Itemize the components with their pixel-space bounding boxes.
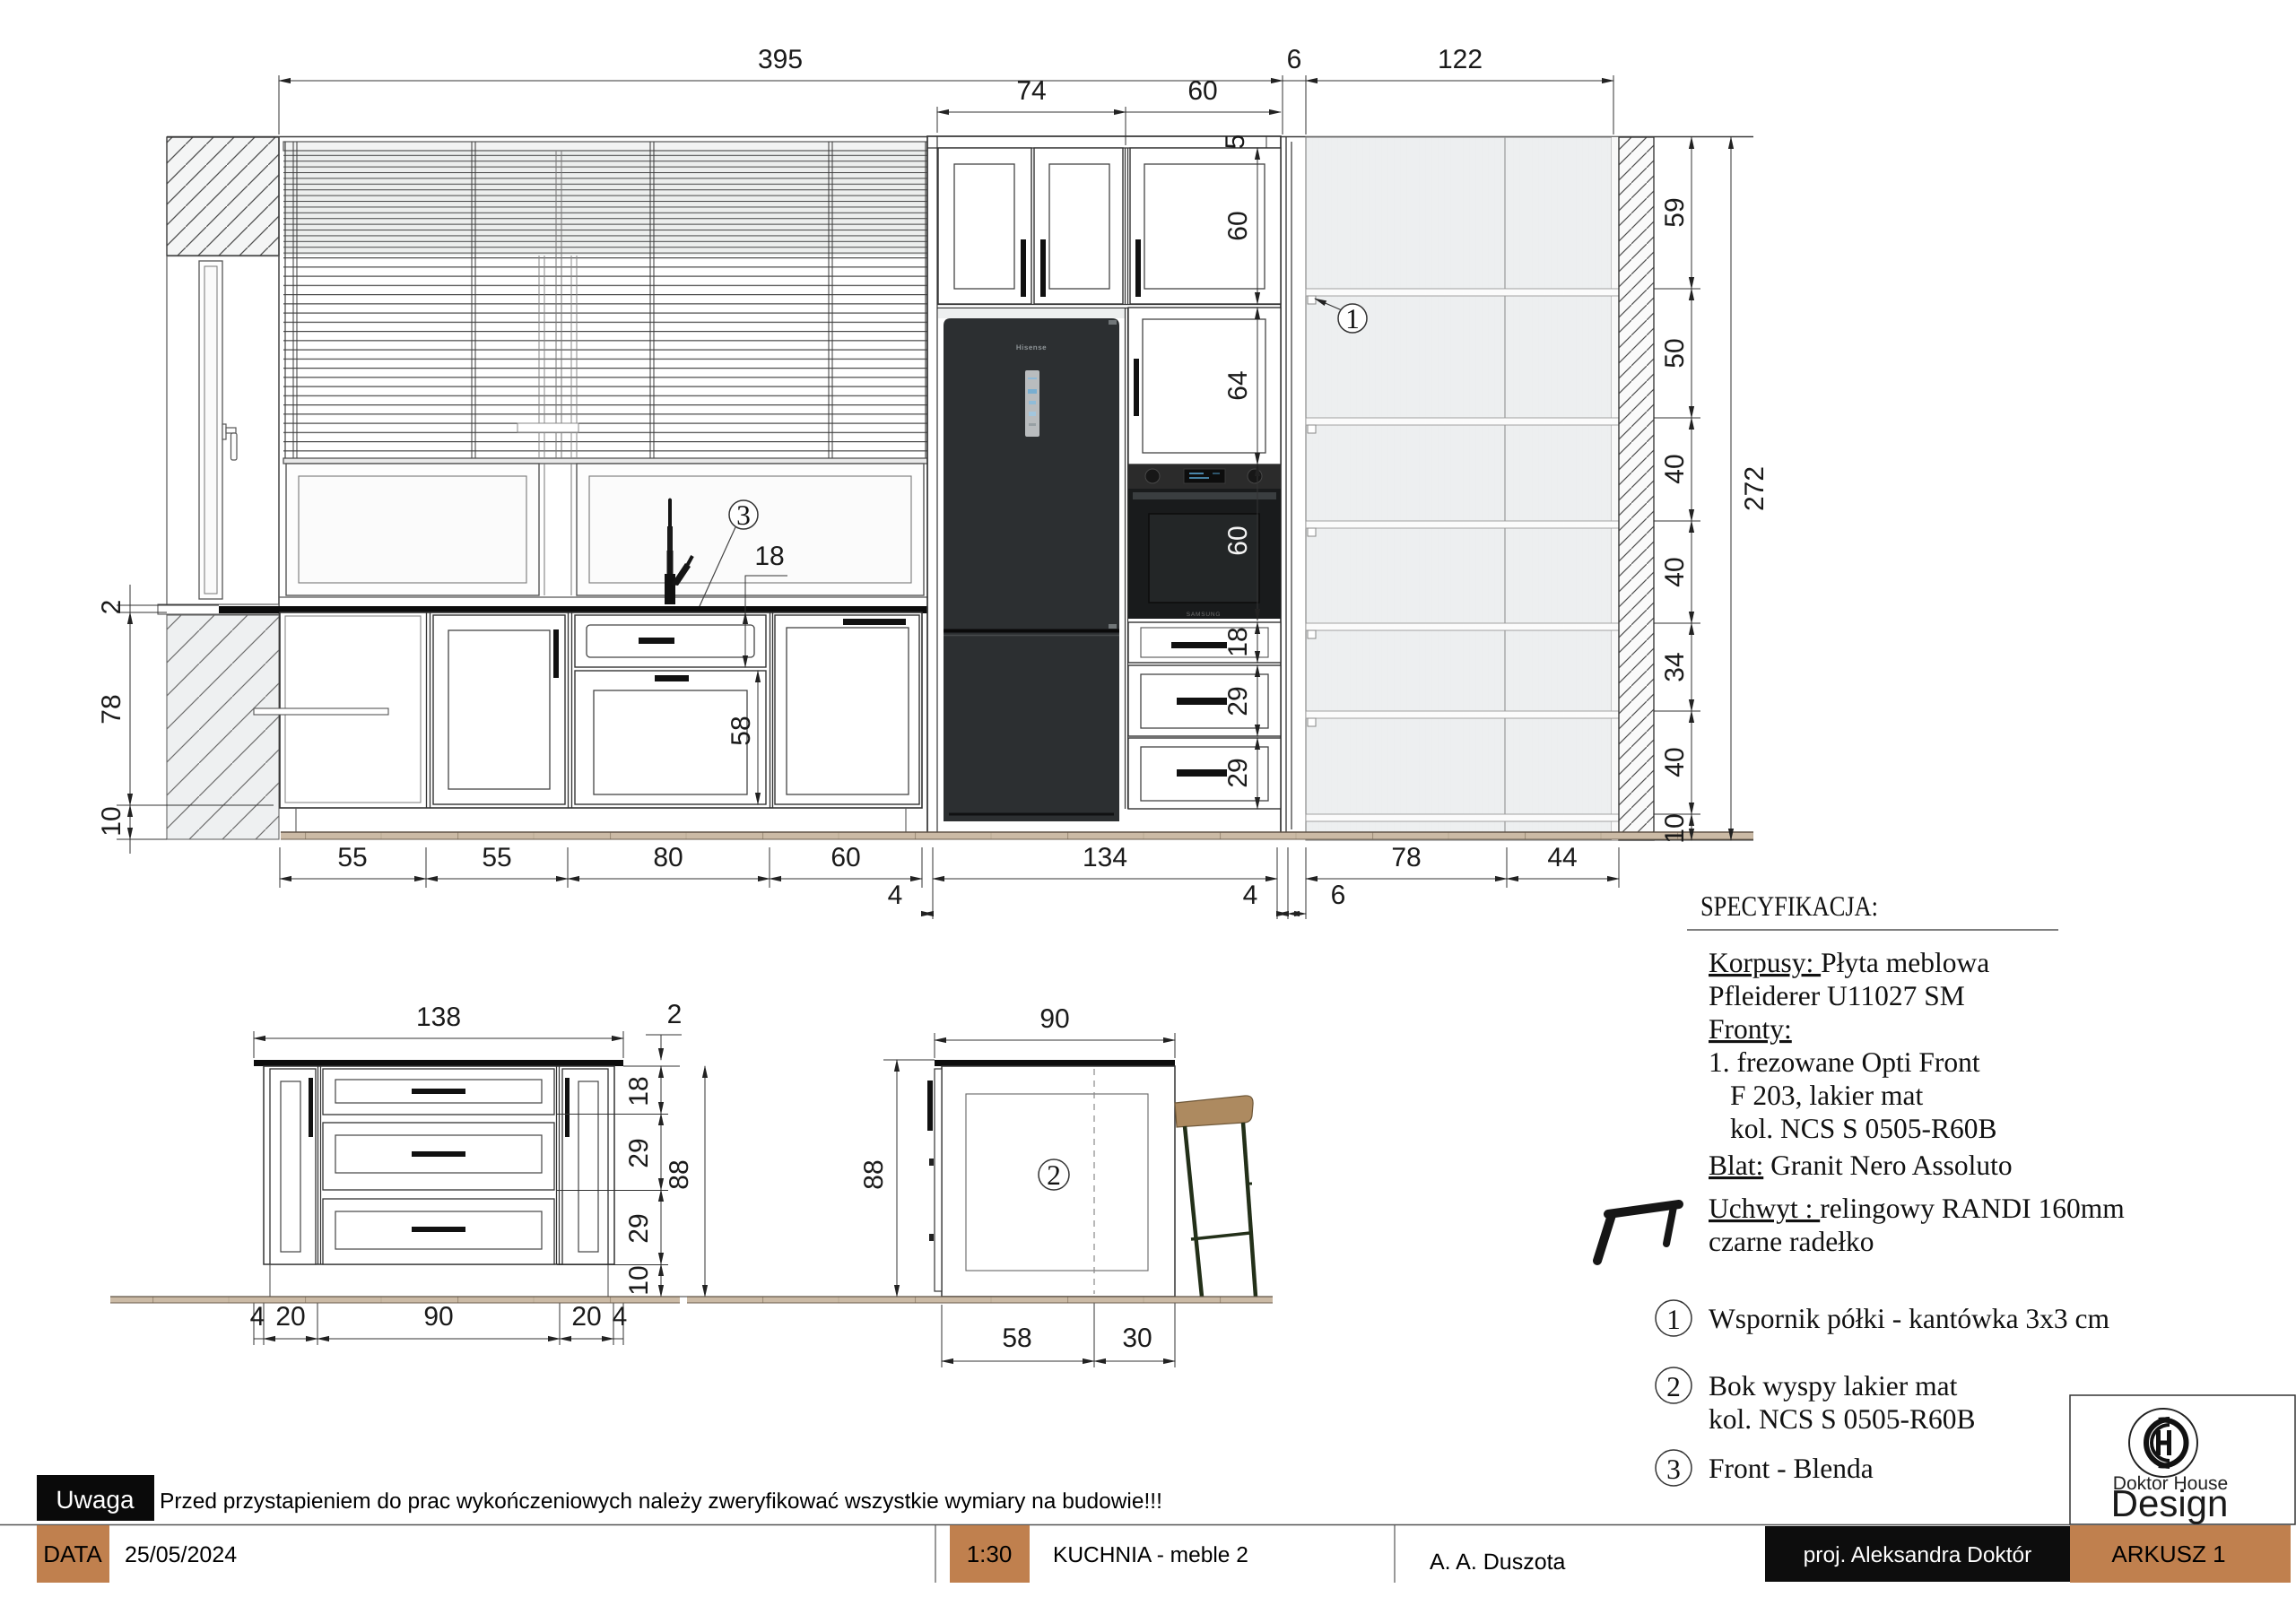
svg-text:2: 2 [97,600,126,615]
svg-text:60: 60 [1187,76,1217,106]
svg-text:10: 10 [1660,813,1690,843]
svg-text:60: 60 [831,843,860,872]
svg-text:40: 40 [1660,747,1690,777]
svg-text:272: 272 [1740,466,1770,511]
svg-text:58: 58 [726,716,756,745]
svg-text:58: 58 [1002,1324,1031,1353]
svg-text:40: 40 [1660,557,1690,586]
svg-text:2: 2 [1666,1371,1681,1402]
svg-text:czarne radełko: czarne radełko [1709,1226,1874,1257]
svg-text:Uwaga: Uwaga [56,1486,135,1514]
svg-text:6: 6 [1331,881,1346,910]
svg-text:Uchwyt : relingowy RANDI 160m: Uchwyt : relingowy RANDI 160mm [1709,1193,2125,1224]
svg-text:2: 2 [667,1000,683,1029]
svg-text:18: 18 [624,1076,654,1106]
svg-text:20: 20 [571,1302,601,1332]
svg-text:10: 10 [97,806,126,836]
svg-text:Design: Design [2111,1482,2229,1524]
svg-text:78: 78 [97,694,126,724]
svg-text:90: 90 [423,1302,453,1332]
svg-text:88: 88 [859,1159,889,1189]
svg-text:60: 60 [1223,211,1253,240]
svg-text:Korpusy: Płyta meblowa: Korpusy: Płyta meblowa [1709,947,1989,978]
svg-text:55: 55 [337,843,367,872]
svg-text:4: 4 [1243,881,1258,910]
svg-text:proj. Aleksandra Doktór: proj. Aleksandra Doktór [1804,1543,2032,1567]
svg-text:20: 20 [275,1302,305,1332]
svg-text:29: 29 [624,1138,654,1167]
svg-text:2: 2 [1047,1159,1061,1191]
svg-text:29: 29 [624,1213,654,1243]
svg-text:122: 122 [1438,45,1483,74]
svg-text:4: 4 [888,881,903,910]
svg-text:29: 29 [1223,758,1253,787]
svg-text:5: 5 [1221,135,1250,150]
svg-text:29: 29 [1223,686,1253,716]
svg-text:F 203, lakier mat: F 203, lakier mat [1730,1080,1923,1111]
svg-text:18: 18 [754,542,784,571]
svg-text:SPECYFIKACJA:: SPECYFIKACJA: [1700,890,1878,922]
svg-text:4: 4 [613,1302,628,1332]
svg-text:Hisense: Hisense [1016,343,1047,352]
svg-text:395: 395 [758,45,803,74]
svg-text:6: 6 [1287,45,1302,74]
svg-text:59: 59 [1660,197,1690,227]
svg-text:80: 80 [653,843,683,872]
svg-text:78: 78 [1391,843,1421,872]
svg-text:1:30: 1:30 [967,1541,1013,1567]
svg-text:25/05/2024: 25/05/2024 [125,1542,237,1567]
svg-text:kol. NCS S 0505-R60B: kol. NCS S 0505-R60B [1730,1113,1997,1144]
svg-text:Blat: Granit Nero Assoluto: Blat: Granit Nero Assoluto [1709,1150,2013,1181]
svg-text:A. A. Duszota: A. A. Duszota [1430,1549,1566,1575]
svg-text:3: 3 [1666,1454,1681,1485]
svg-text:ARKUSZ 1: ARKUSZ 1 [2111,1541,2225,1567]
svg-text:40: 40 [1660,454,1690,483]
svg-text:kol. NCS S 0505-R60B: kol. NCS S 0505-R60B [1709,1403,1976,1435]
svg-text:3: 3 [736,499,751,531]
svg-text:Bok wyspy lakier mat: Bok wyspy lakier mat [1709,1370,1958,1402]
svg-text:55: 55 [482,843,511,872]
svg-text:10: 10 [624,1265,654,1295]
svg-text:1: 1 [1345,303,1360,334]
svg-text:64: 64 [1223,370,1253,400]
svg-text:Fronty:: Fronty: [1709,1013,1792,1045]
svg-text:34: 34 [1660,652,1690,681]
svg-text:50: 50 [1660,338,1690,368]
svg-text:KUCHNIA - meble 2: KUCHNIA - meble 2 [1053,1543,1248,1567]
svg-text:90: 90 [1039,1004,1069,1034]
svg-text:44: 44 [1547,843,1577,872]
svg-text:Front - Blenda: Front - Blenda [1709,1453,1874,1484]
svg-text:88: 88 [665,1159,694,1189]
svg-text:1: 1 [1666,1304,1681,1335]
svg-text:1. frezowane Opti Front: 1. frezowane Opti Front [1709,1046,1980,1078]
svg-text:60: 60 [1223,525,1253,555]
svg-text:18: 18 [1223,627,1253,656]
svg-text:138: 138 [416,1002,461,1032]
svg-text:Pfleiderer U11027 SM: Pfleiderer U11027 SM [1709,980,1965,1011]
svg-text:30: 30 [1122,1324,1152,1353]
svg-text:4: 4 [250,1302,265,1332]
svg-text:Przed przystapieniem do prac w: Przed przystapieniem do prac wykończenio… [160,1489,1162,1514]
svg-text:74: 74 [1016,76,1046,106]
svg-text:SAMSUNG: SAMSUNG [1187,612,1221,618]
svg-text:134: 134 [1083,843,1127,872]
svg-text:Wspornik półki - kantówka 3x3: Wspornik półki - kantówka 3x3 cm [1709,1303,2110,1334]
svg-text:DATA: DATA [43,1541,102,1567]
